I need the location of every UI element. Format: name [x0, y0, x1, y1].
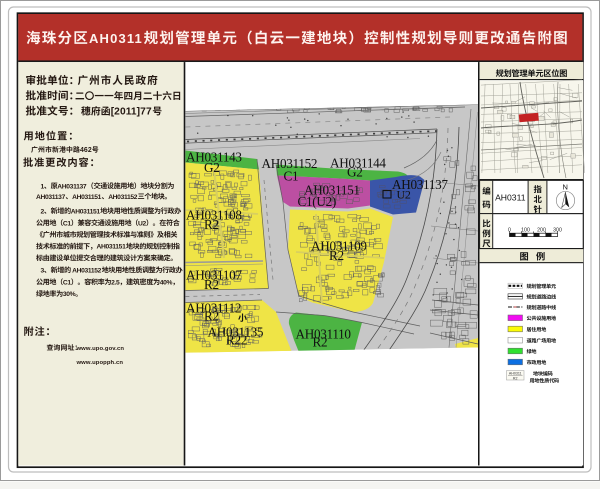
- svg-text:30%: 30%: [63, 291, 76, 298]
- svg-text:G2: G2: [204, 160, 220, 175]
- svg-text:40%: 40%: [160, 279, 173, 286]
- svg-text:2.5: 2.5: [111, 279, 120, 286]
- svg-text:R22: R22: [226, 333, 247, 348]
- svg-text:AH0311: AH0311: [495, 192, 526, 202]
- svg-text:R2: R2: [204, 217, 219, 232]
- svg-text:C1: C1: [63, 220, 71, 227]
- svg-text:R2: R2: [204, 309, 219, 324]
- svg-text:AH031152: AH031152: [108, 194, 138, 201]
- svg-text:C1(U2): C1(U2): [298, 194, 337, 209]
- svg-text:www.upo.gov.cn: www.upo.gov.cn: [76, 346, 125, 352]
- svg-text:AH031151: AH031151: [71, 208, 101, 215]
- svg-text:C1: C1: [63, 279, 71, 286]
- svg-text:www.upopph.cn: www.upopph.cn: [76, 360, 124, 366]
- svg-text:462: 462: [80, 147, 92, 154]
- svg-text:AH0311: AH0311: [509, 372, 522, 376]
- svg-text:100: 100: [521, 227, 530, 233]
- svg-text:AH031137: AH031137: [36, 194, 66, 201]
- svg-text:G2: G2: [347, 165, 363, 180]
- svg-text:R2: R2: [513, 377, 518, 381]
- svg-text:[2011]77: [2011]77: [111, 107, 152, 118]
- svg-text:C1: C1: [284, 169, 299, 184]
- svg-text:AH031151: AH031151: [72, 194, 102, 201]
- svg-text:R2: R2: [313, 335, 328, 350]
- svg-text:U2: U2: [138, 220, 146, 227]
- svg-text:N: N: [563, 183, 568, 192]
- svg-text:R2: R2: [204, 277, 219, 292]
- svg-text:R2: R2: [329, 248, 344, 263]
- svg-text:AH031152: AH031152: [71, 267, 102, 274]
- svg-text:U2: U2: [397, 188, 411, 202]
- svg-text:AH0311: AH0311: [89, 31, 143, 46]
- svg-text:AH031137: AH031137: [57, 183, 87, 190]
- svg-text:200: 200: [537, 227, 546, 233]
- svg-text:AH031151: AH031151: [97, 244, 127, 251]
